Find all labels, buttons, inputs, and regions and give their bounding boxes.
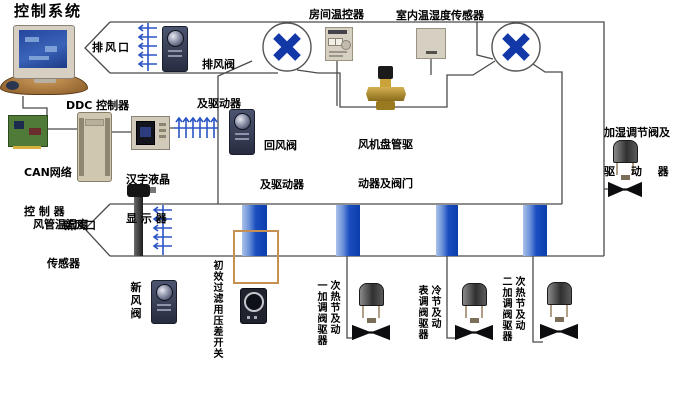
indoor-temp-humidity-sensor-device bbox=[416, 28, 446, 59]
label-fresh-air-valve: 新风阀 bbox=[130, 281, 142, 320]
hvac-control-system-diagram: 控制系统 排风口 排风阀 及驱动器 房间温控器 室内温湿度传感器 DDC 控制器… bbox=[0, 0, 700, 406]
label-room-thermostat: 房间温控器 bbox=[309, 8, 364, 21]
lcd-display-device bbox=[131, 116, 170, 150]
secondary-heating-valve-actuator bbox=[540, 282, 578, 341]
fan-coil-valve-device bbox=[366, 66, 406, 112]
supply-fan-icon bbox=[492, 23, 540, 71]
mouse bbox=[6, 81, 19, 90]
primary-heating-coil bbox=[336, 205, 360, 256]
label-indoor-sensor: 室内温湿度传感器 bbox=[396, 9, 484, 22]
label-lcd-display: 汉字液晶 显 示 器 bbox=[126, 147, 170, 251]
label-return-damper: 回风阀 及驱动器 bbox=[260, 113, 304, 217]
ddc-controller-device bbox=[77, 112, 112, 182]
label-humidifier-valve: 加湿调节阀及 驱 动 器 bbox=[604, 100, 675, 204]
cooling-valve-actuator bbox=[455, 283, 493, 342]
return-fan-icon bbox=[263, 23, 311, 71]
label-fan-coil-valve: 风机盘管驱 动器及阀门 bbox=[358, 112, 413, 216]
exhaust-damper-icon bbox=[139, 23, 157, 71]
page-title: 控制系统 bbox=[14, 5, 82, 18]
label-primary-heating-valve: 一加调阀驱器 次热节及动 bbox=[317, 281, 341, 347]
filter-pressure-switch bbox=[240, 288, 267, 324]
label-fresh-air-inlet: 新风口 bbox=[63, 219, 96, 232]
hmi-screen bbox=[19, 30, 67, 68]
label-cooling-valve: 表调阀驱器 冷节及动 bbox=[418, 286, 442, 341]
lcd-screen bbox=[136, 121, 155, 145]
label-filter-pressure-switch: 初效过滤用压差开关 bbox=[213, 261, 224, 360]
label-duct-sensor: 风管温湿度 传感器 bbox=[33, 192, 88, 296]
cooling-coil bbox=[436, 205, 458, 256]
primary-heating-valve-actuator bbox=[352, 283, 390, 342]
room-thermostat-device bbox=[325, 27, 353, 61]
fresh-air-damper-actuator bbox=[151, 280, 177, 324]
label-ddc-controller: DDC 控制器 bbox=[66, 99, 129, 112]
label-exhaust-outlet: 排风口 bbox=[92, 41, 131, 54]
exhaust-damper-actuator bbox=[162, 26, 188, 72]
monitor bbox=[13, 25, 75, 79]
filter-frame bbox=[233, 230, 279, 284]
label-secondary-heating-valve: 二加调阀驱器 次热节及动 bbox=[502, 277, 526, 343]
lcd-buttons bbox=[159, 123, 166, 141]
secondary-heating-coil bbox=[523, 205, 547, 256]
label-exhaust-damper: 排风阀 及驱动器 bbox=[197, 32, 241, 136]
